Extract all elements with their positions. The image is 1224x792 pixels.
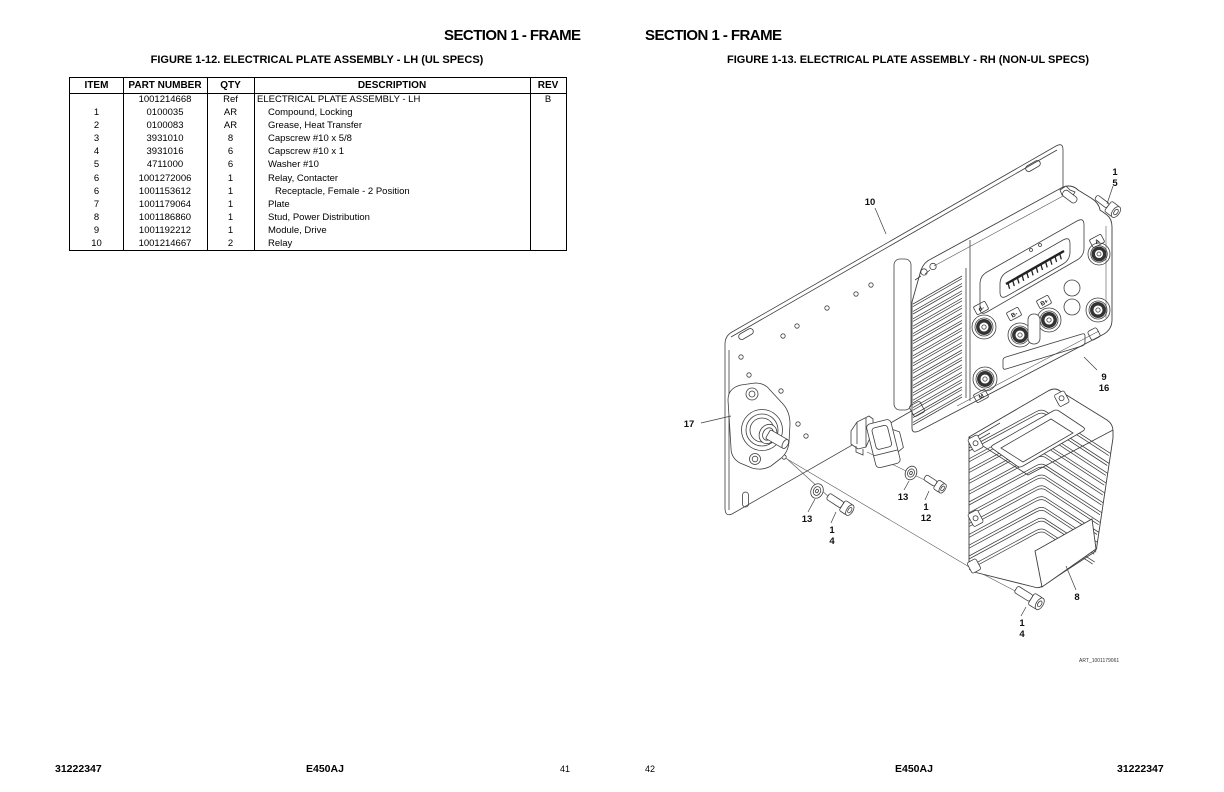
svg-text:17: 17 [684, 419, 695, 430]
svg-text:1: 1 [1019, 618, 1025, 629]
svg-text:9: 9 [1101, 372, 1106, 383]
svg-text:ART_1001179061: ART_1001179061 [1079, 658, 1119, 664]
svg-text:8: 8 [1074, 592, 1079, 603]
svg-text:13: 13 [898, 492, 909, 503]
svg-text:16: 16 [1099, 383, 1110, 394]
svg-text:1: 1 [829, 525, 835, 536]
svg-text:5: 5 [1112, 178, 1118, 189]
svg-text:13: 13 [802, 514, 813, 525]
svg-text:10: 10 [865, 197, 876, 208]
svg-text:4: 4 [1019, 629, 1025, 640]
svg-text:4: 4 [829, 536, 835, 547]
svg-text:1: 1 [1112, 167, 1118, 178]
svg-text:1: 1 [923, 502, 929, 513]
svg-text:12: 12 [921, 513, 932, 524]
